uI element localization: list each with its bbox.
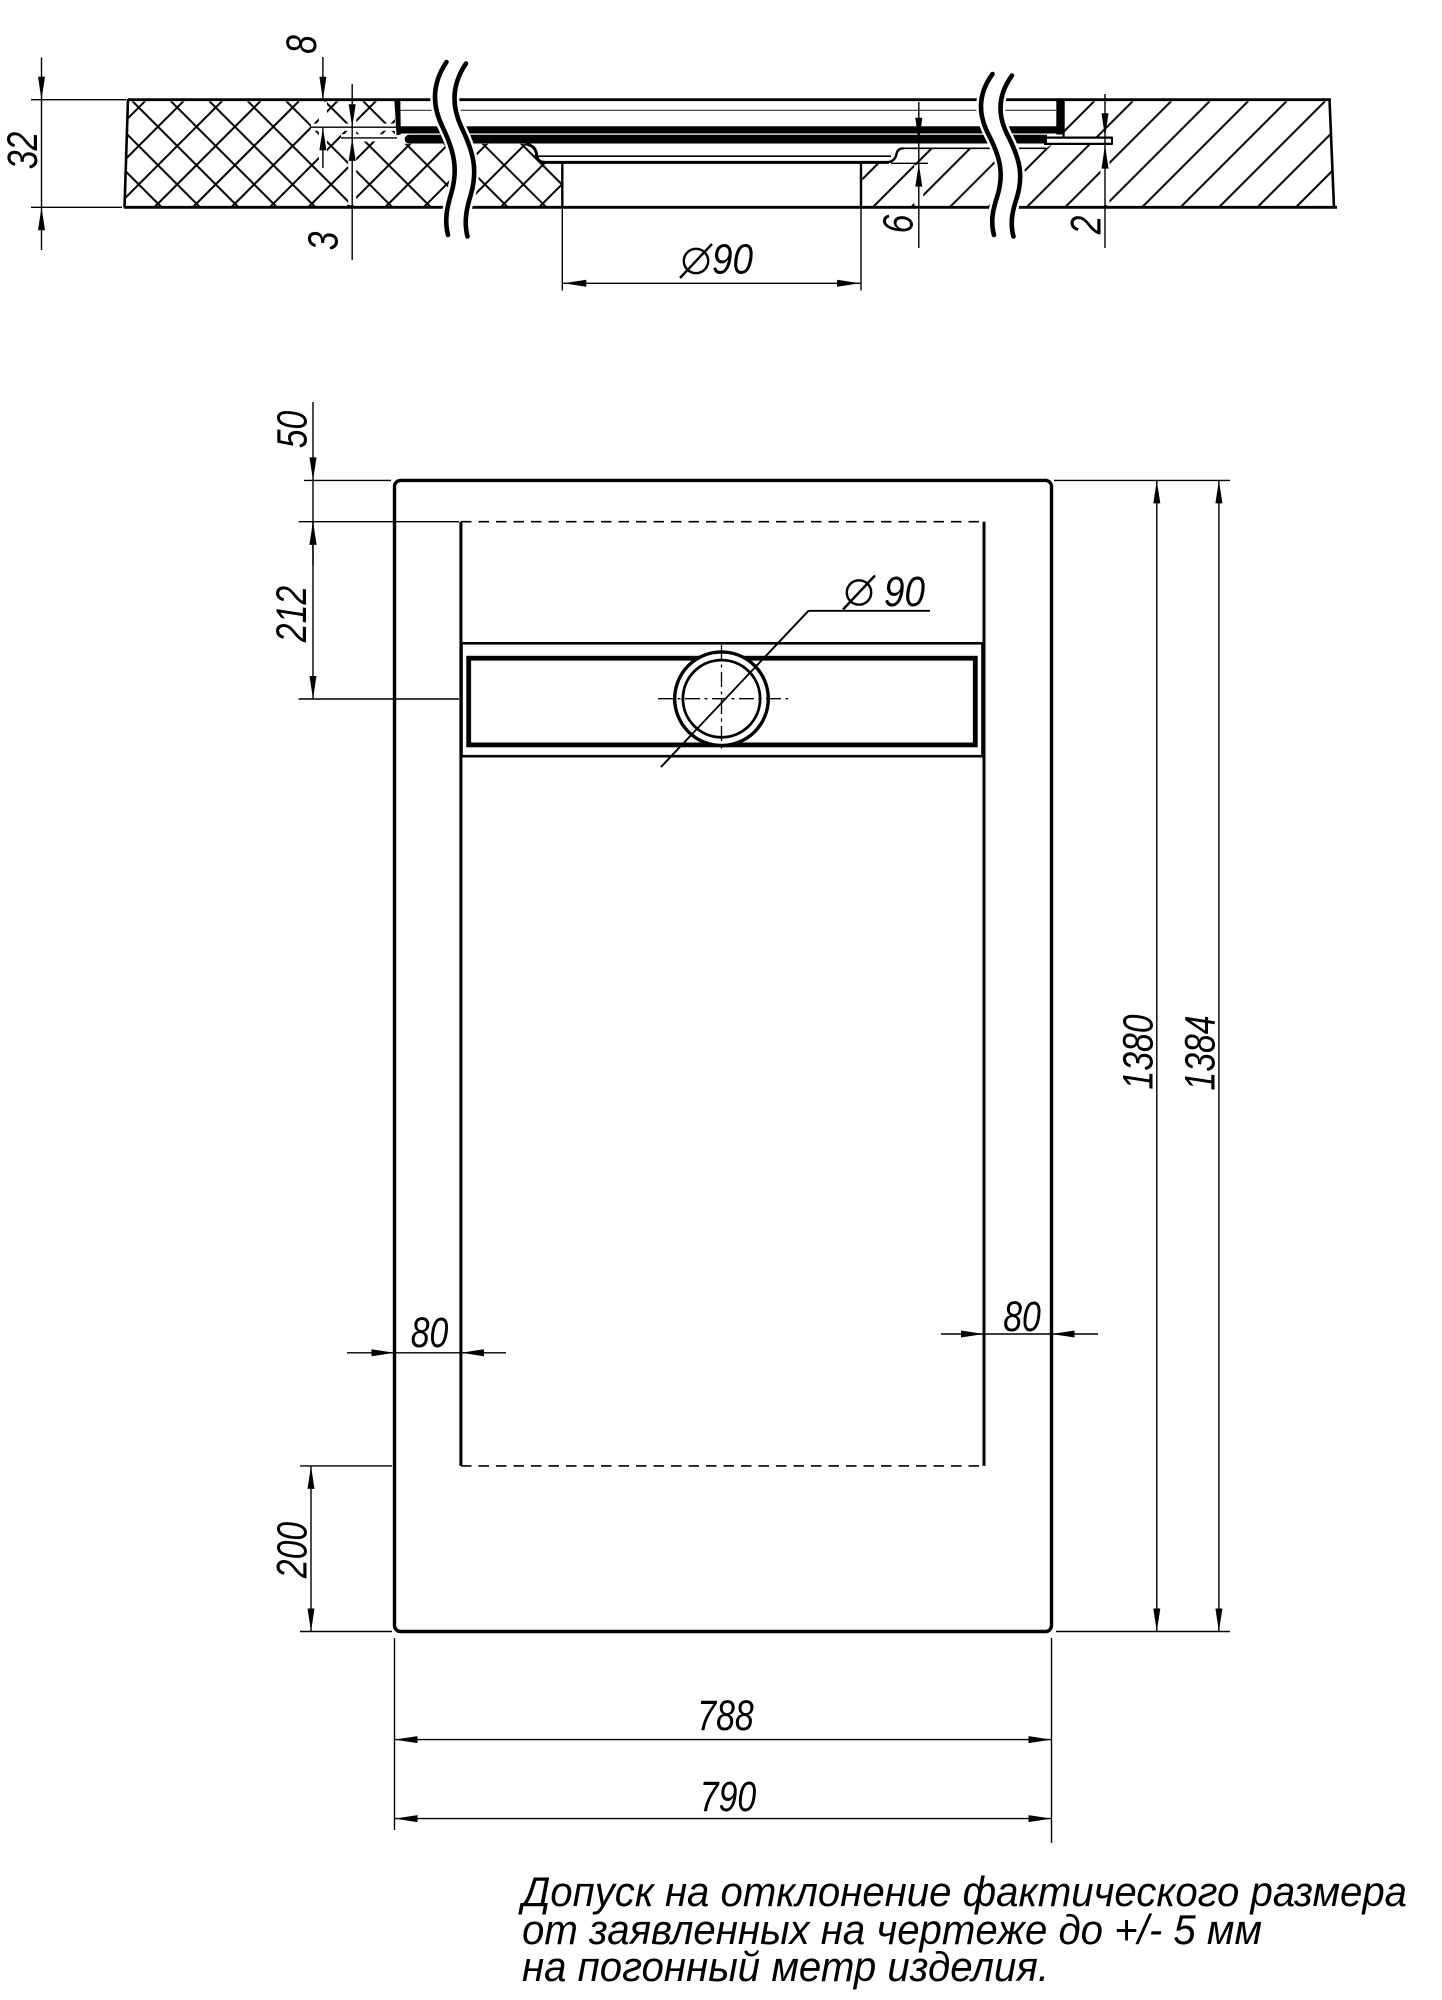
svg-text:50: 50 [269, 411, 317, 449]
svg-text:1384: 1384 [1177, 1015, 1225, 1090]
svg-text:2: 2 [1063, 216, 1111, 236]
svg-text:80: 80 [411, 1309, 449, 1357]
svg-text:6: 6 [875, 215, 923, 234]
svg-text:32: 32 [0, 132, 47, 170]
svg-text:788: 788 [697, 1692, 753, 1740]
svg-text:90: 90 [712, 236, 753, 284]
svg-text:80: 80 [1003, 1293, 1041, 1341]
svg-text:на погонный метр изделия.: на погонный метр изделия. [522, 1943, 1049, 1990]
svg-text:790: 790 [700, 1773, 756, 1821]
svg-text:3: 3 [300, 232, 348, 251]
svg-text:90: 90 [884, 568, 925, 616]
svg-text:8: 8 [278, 35, 326, 54]
svg-text:1380: 1380 [1115, 1014, 1163, 1089]
svg-text:212: 212 [268, 586, 316, 643]
svg-text:200: 200 [269, 1522, 317, 1579]
